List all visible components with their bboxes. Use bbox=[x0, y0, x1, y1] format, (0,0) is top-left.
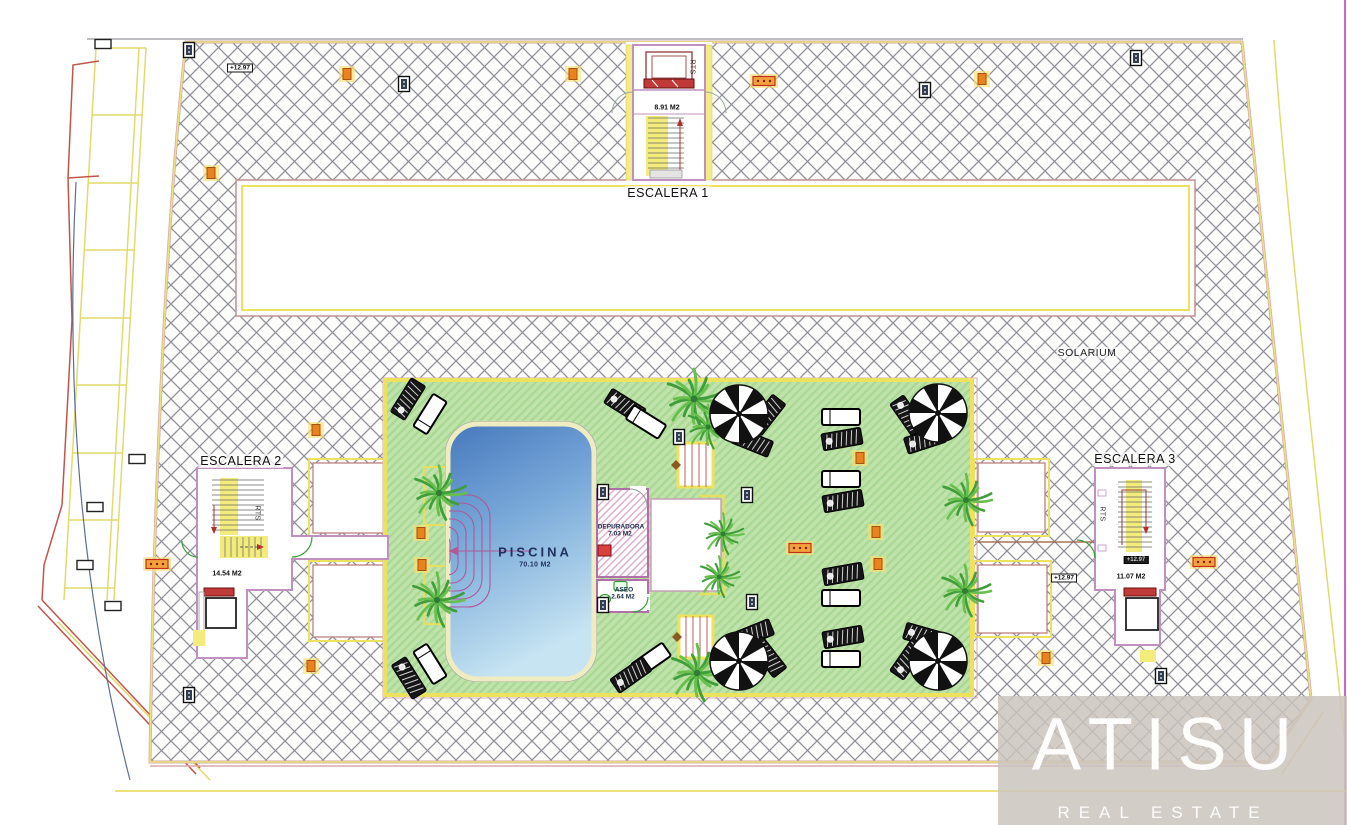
orange-marker bbox=[413, 525, 429, 541]
pergola-bottom bbox=[672, 616, 713, 658]
orange-marker bbox=[870, 556, 886, 572]
orange-marker bbox=[852, 450, 868, 466]
elevator-door bbox=[204, 588, 234, 596]
sun-lounger-white bbox=[822, 590, 860, 606]
parasol-icon bbox=[909, 632, 967, 690]
dark-marker bbox=[742, 488, 753, 503]
strip-marker bbox=[750, 74, 778, 88]
elevator-cabin bbox=[206, 598, 236, 628]
parasol-icon bbox=[710, 632, 768, 690]
dark-marker bbox=[1131, 51, 1142, 66]
outline-marker bbox=[87, 503, 103, 512]
orange-marker bbox=[868, 524, 884, 540]
parasol-icon bbox=[909, 384, 967, 442]
dark-marker bbox=[674, 430, 685, 445]
pump-fixture bbox=[598, 545, 611, 556]
elevator-door bbox=[644, 79, 694, 88]
orange-marker bbox=[565, 66, 581, 82]
orange-marker bbox=[303, 658, 319, 674]
outline-marker bbox=[129, 455, 145, 464]
dark-marker bbox=[747, 595, 758, 610]
strip-marker bbox=[143, 557, 171, 571]
escalera1-module bbox=[612, 42, 726, 182]
orange-marker bbox=[1038, 650, 1054, 666]
parasol-icon bbox=[710, 385, 768, 443]
dark-marker bbox=[184, 43, 195, 58]
elevator-door bbox=[1124, 588, 1156, 596]
roof-plan-drawing bbox=[0, 0, 1347, 825]
sun-lounger-white bbox=[822, 651, 860, 667]
orange-marker bbox=[203, 165, 219, 181]
sun-lounger-white bbox=[822, 409, 860, 425]
outline-marker bbox=[77, 561, 93, 570]
dark-marker bbox=[598, 485, 609, 500]
sink-icon bbox=[614, 582, 627, 591]
outline-marker bbox=[105, 602, 121, 611]
orange-marker bbox=[308, 422, 324, 438]
dark-marker bbox=[598, 598, 609, 613]
strip-marker bbox=[1190, 555, 1218, 569]
elevator-cabin bbox=[1126, 598, 1158, 630]
orange-marker bbox=[974, 71, 990, 87]
floor-plan-canvas: ESCALERA 1 ESCALERA 2 ESCALERA 3 SOLARIU… bbox=[0, 0, 1347, 825]
sun-lounger-white bbox=[822, 471, 860, 487]
outline-marker bbox=[95, 40, 111, 49]
dark-marker bbox=[399, 77, 410, 92]
stair-run bbox=[646, 116, 668, 176]
orange-marker bbox=[339, 66, 355, 82]
orange-marker bbox=[414, 557, 430, 573]
pergola-top bbox=[671, 443, 713, 487]
building-roof-opening bbox=[236, 180, 1195, 316]
strip-marker bbox=[786, 541, 814, 555]
stair-run bbox=[1126, 480, 1142, 552]
utility-box bbox=[651, 496, 724, 594]
stair-run bbox=[220, 478, 238, 535]
dark-marker bbox=[920, 83, 931, 98]
dark-marker bbox=[1156, 669, 1167, 684]
dark-marker bbox=[184, 688, 195, 703]
